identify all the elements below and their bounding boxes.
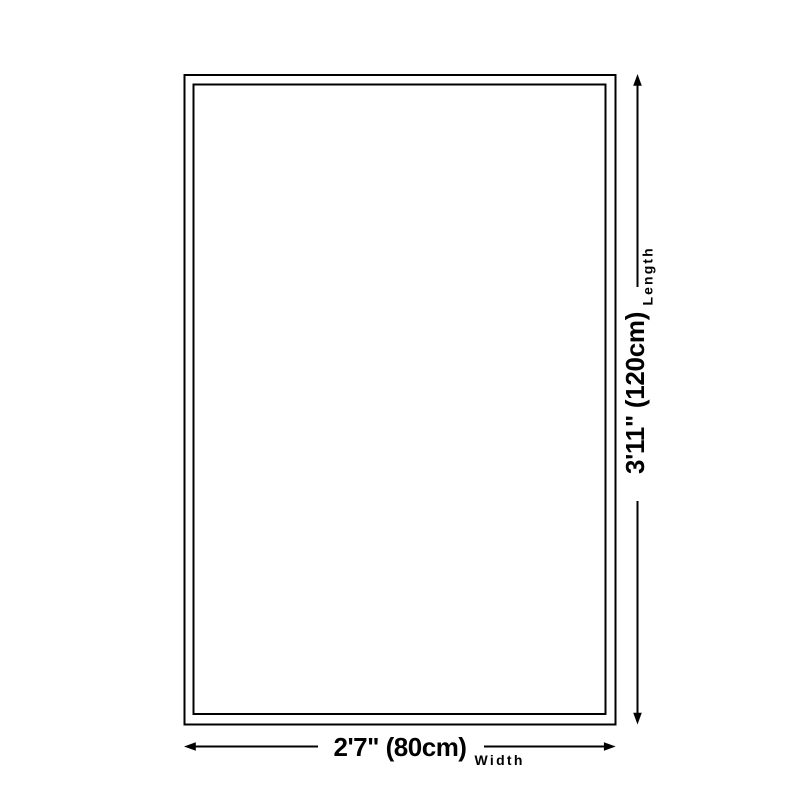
svg-text:3'11" (120cm): 3'11" (120cm) (620, 312, 650, 474)
svg-text:Length: Length (640, 246, 656, 305)
svg-text:Width: Width (475, 752, 525, 768)
svg-text:2'7" (80cm): 2'7" (80cm) (334, 732, 467, 762)
